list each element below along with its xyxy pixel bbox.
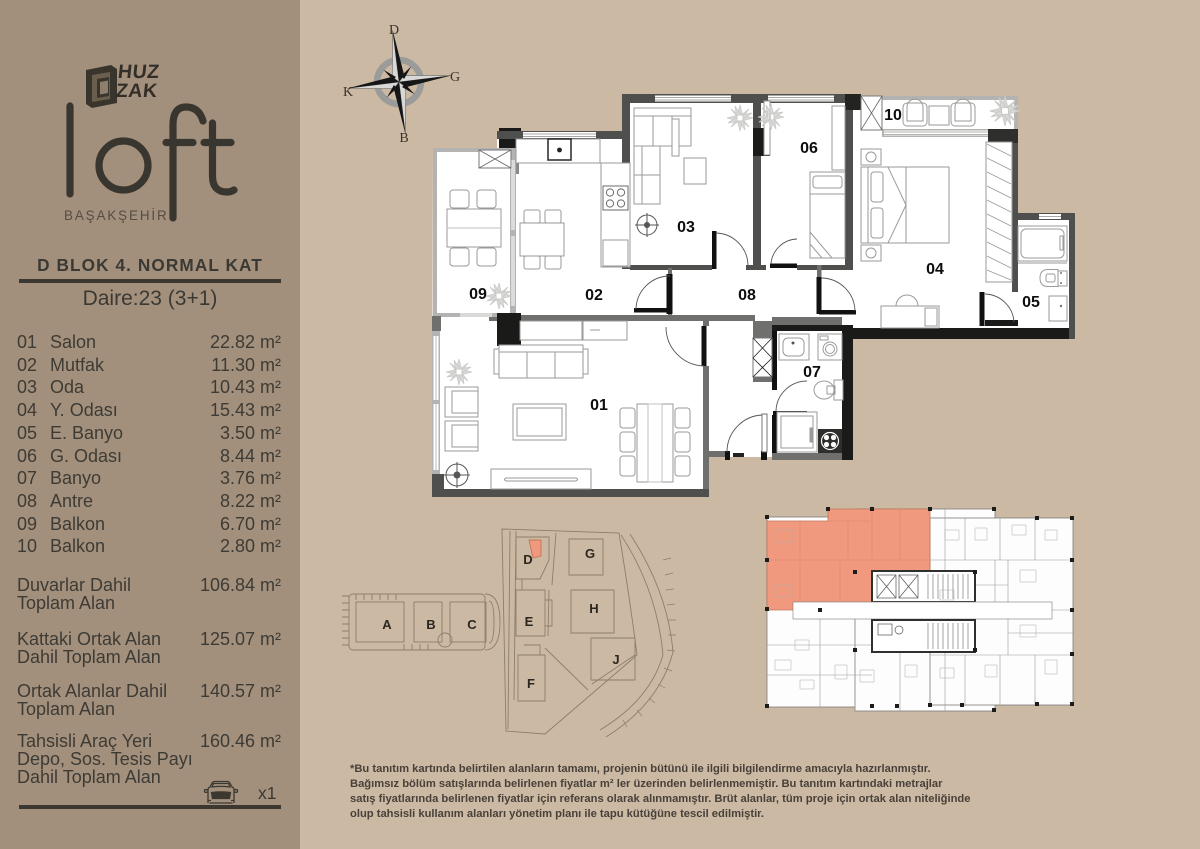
svg-text:H: H [589, 601, 598, 616]
svg-text:05: 05 [1022, 294, 1040, 311]
svg-text:G: G [450, 70, 460, 85]
svg-text:02: 02 [585, 287, 603, 304]
svg-text:G: G [585, 546, 595, 561]
svg-text:B: B [426, 617, 435, 632]
svg-text:F: F [527, 676, 535, 691]
svg-text:E: E [525, 614, 534, 629]
svg-text:07: 07 [803, 364, 821, 381]
svg-text:04: 04 [926, 261, 944, 278]
svg-text:03: 03 [677, 219, 695, 236]
svg-text:09: 09 [469, 286, 487, 303]
svg-text:A: A [382, 617, 392, 632]
svg-text:C: C [467, 617, 477, 632]
svg-text:B: B [399, 131, 408, 146]
svg-text:01: 01 [590, 397, 608, 414]
svg-text:J: J [612, 652, 619, 667]
svg-text:10: 10 [884, 107, 902, 124]
svg-text:D: D [389, 23, 399, 38]
svg-text:06: 06 [800, 140, 818, 157]
svg-text:K: K [343, 85, 353, 100]
svg-text:D: D [523, 552, 532, 567]
svg-text:08: 08 [738, 287, 756, 304]
